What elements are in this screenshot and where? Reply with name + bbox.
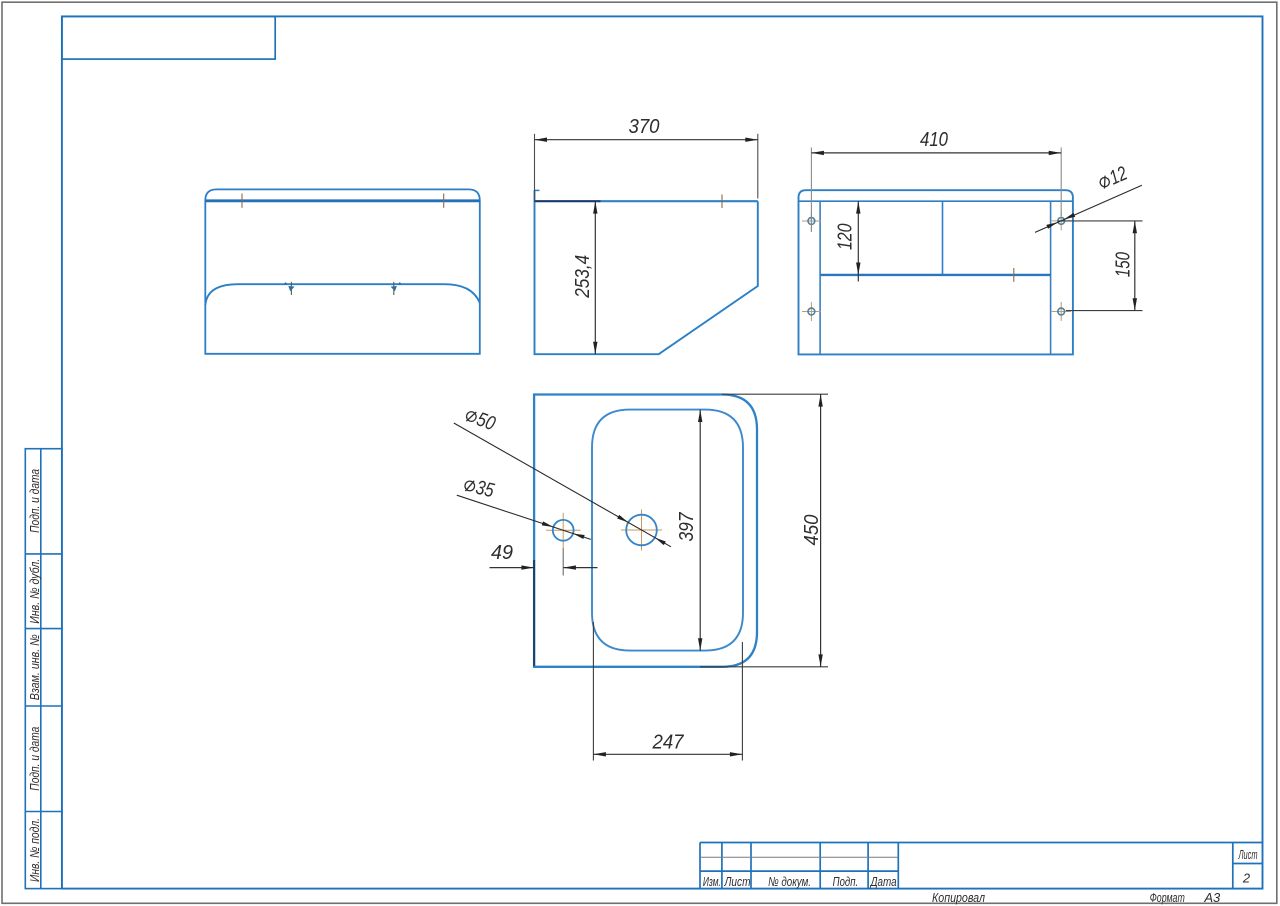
svg-text:247: 247: [652, 731, 685, 753]
svg-text:Подп. и дата: Подп. и дата: [27, 727, 42, 791]
svg-text:№ докум.: № докум.: [768, 874, 811, 889]
svg-text:120: 120: [835, 224, 857, 251]
svg-text:Дата: Дата: [869, 874, 897, 889]
svg-text:397: 397: [676, 512, 698, 542]
svg-text:Инв. № дубл.: Инв. № дубл.: [27, 559, 42, 624]
svg-text:Лист: Лист: [1238, 847, 1258, 862]
svg-text:2: 2: [1242, 871, 1251, 886]
svg-text:49: 49: [491, 542, 513, 564]
svg-text:Лист: Лист: [724, 874, 751, 889]
svg-text:150: 150: [1113, 252, 1135, 277]
svg-text:450: 450: [801, 515, 823, 546]
svg-text:Изм.: Изм.: [703, 874, 721, 889]
svg-text:Инв. № подл.: Инв. № подл.: [27, 818, 42, 882]
svg-text:Взам. инв. №: Взам. инв. №: [27, 634, 42, 700]
svg-text:Копировал: Копировал: [932, 890, 986, 905]
svg-text:253,4: 253,4: [572, 255, 594, 299]
svg-text:Формат: Формат: [1150, 890, 1185, 905]
svg-text:370: 370: [629, 116, 660, 138]
svg-text:Подп. и дата: Подп. и дата: [27, 469, 42, 533]
svg-text:Подп.: Подп.: [833, 874, 859, 889]
svg-text:А3: А3: [1203, 890, 1221, 905]
svg-text:410: 410: [920, 129, 948, 151]
